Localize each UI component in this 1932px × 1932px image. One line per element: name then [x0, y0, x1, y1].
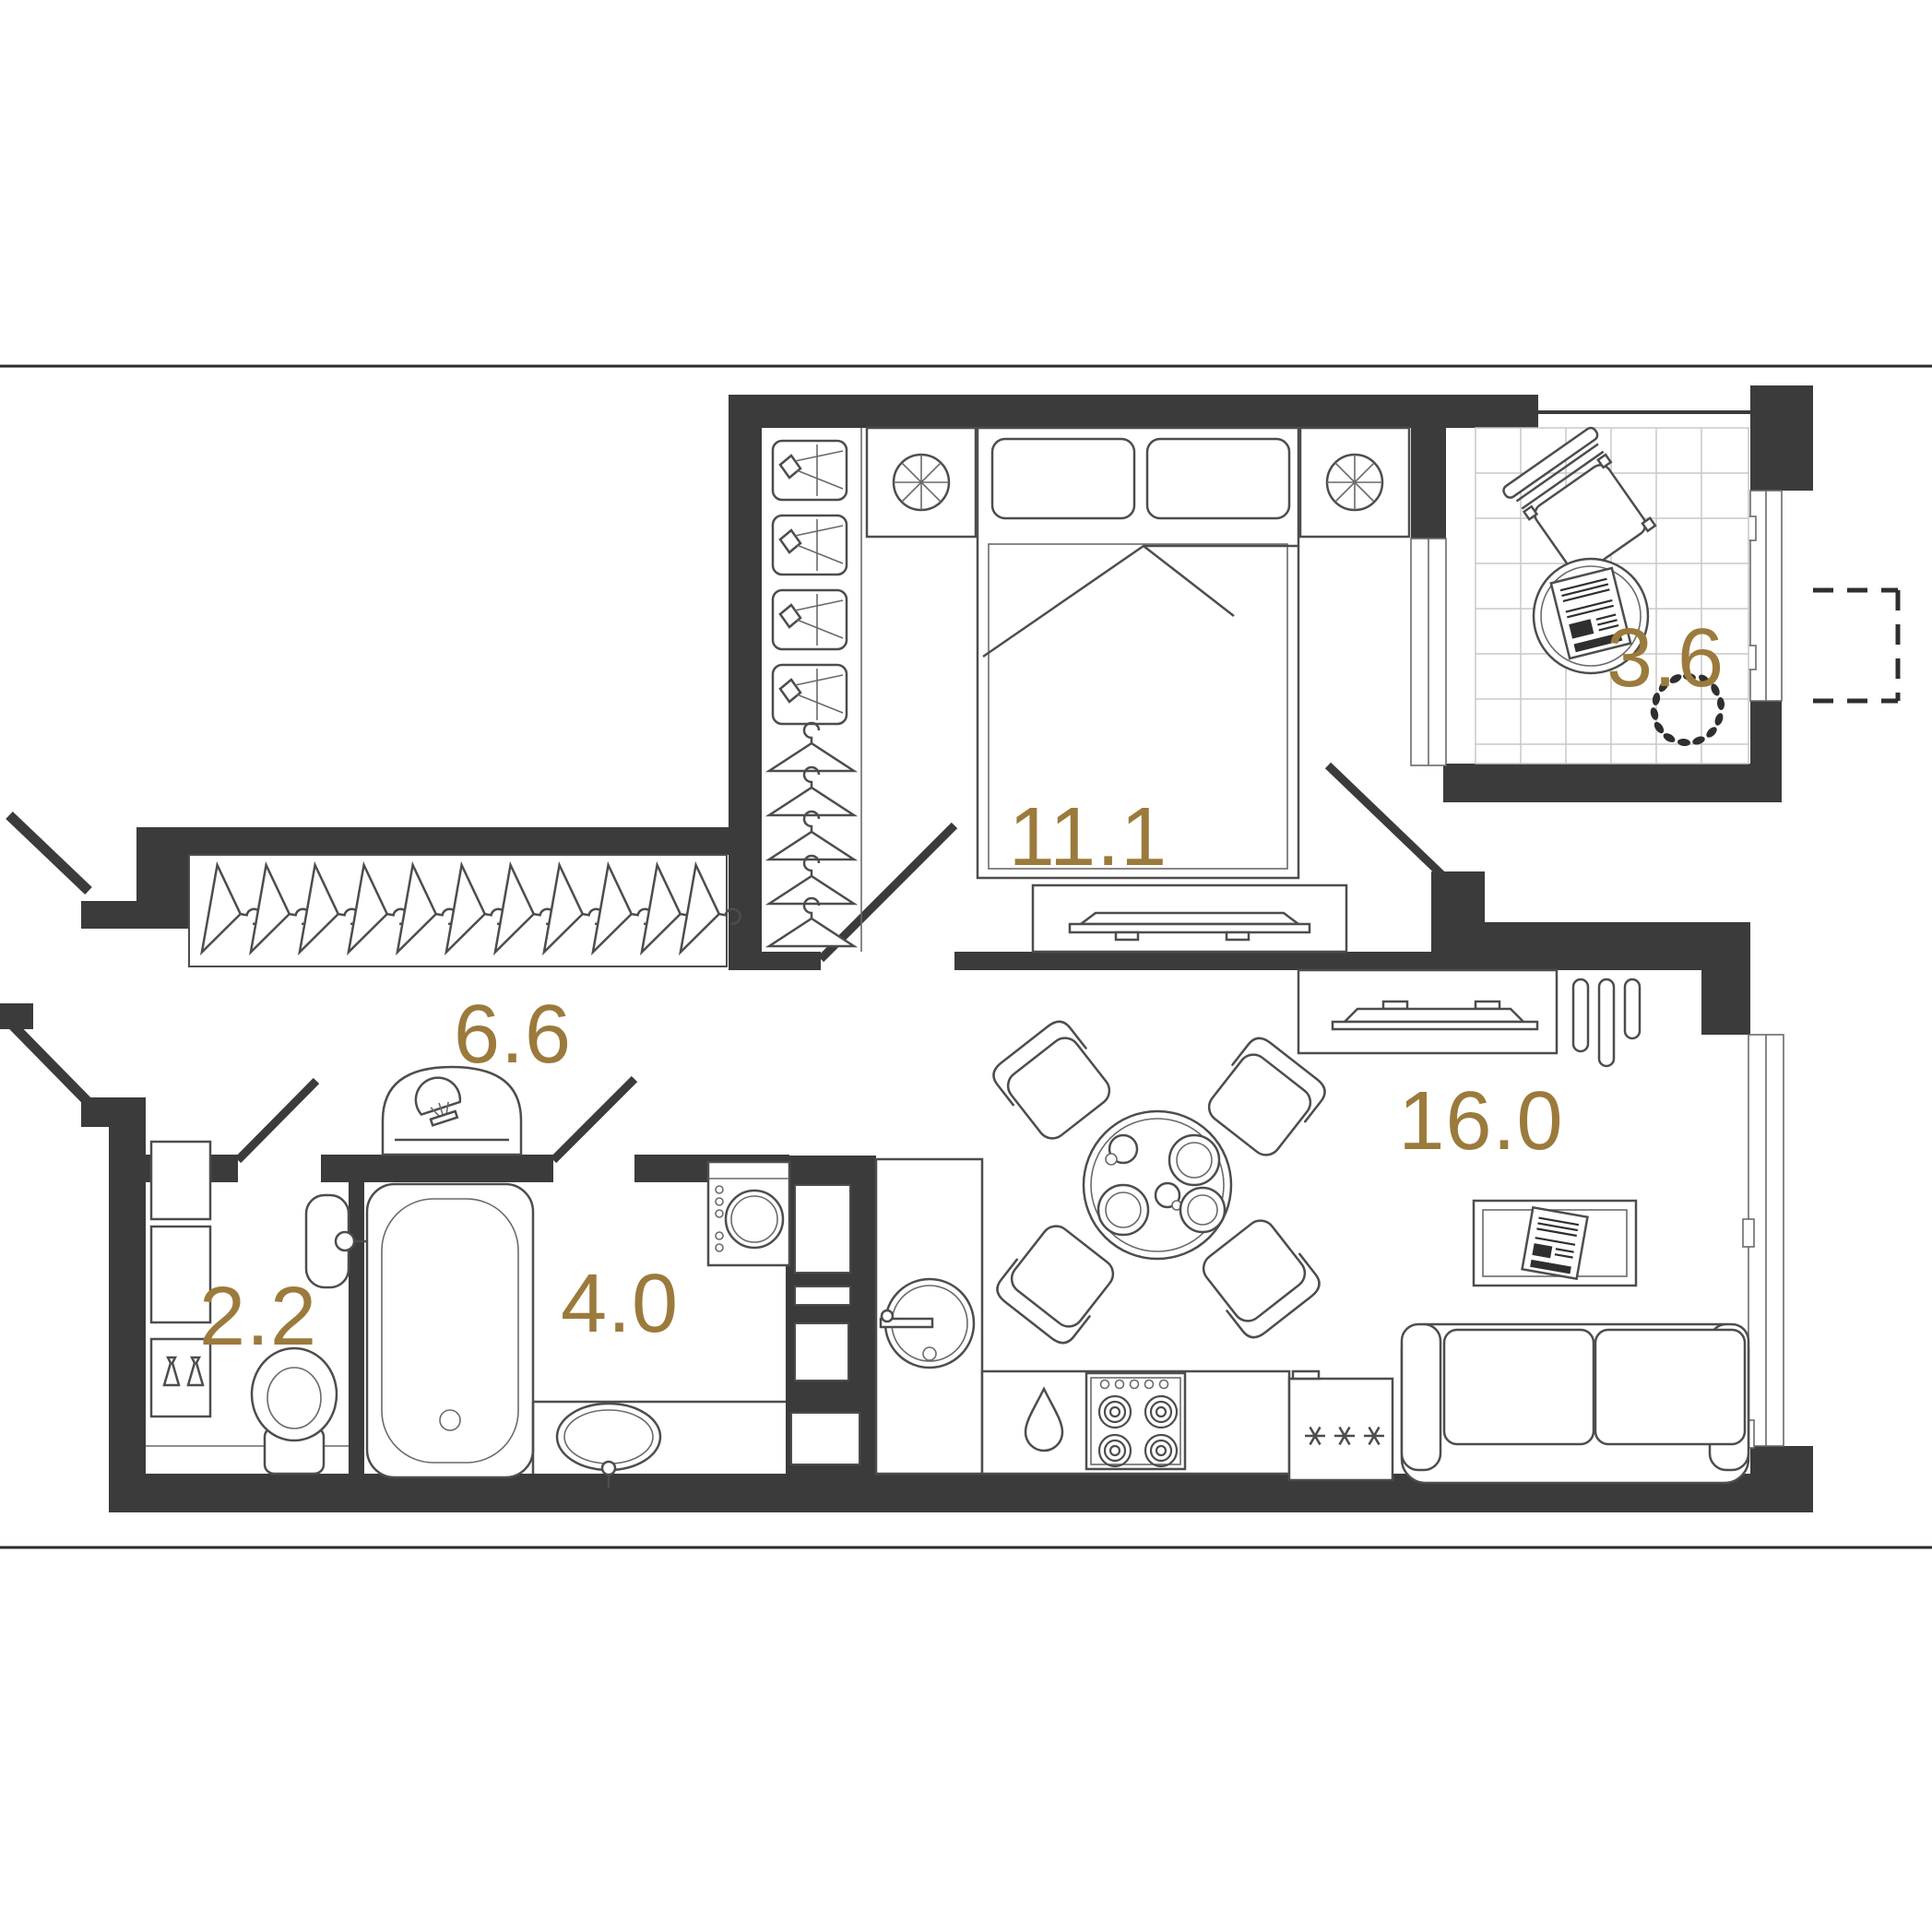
hall-closet — [189, 855, 748, 966]
room-area-label-hallway: 6.6 — [454, 989, 572, 1081]
washing-machine-icon — [708, 1162, 789, 1265]
balcony-outline-dashed — [1813, 590, 1898, 701]
room-area-label-balcony: 3.6 — [1606, 612, 1725, 705]
room-area-label-wc: 2.2 — [199, 1271, 317, 1363]
folded-clothes-icons — [773, 441, 847, 724]
kitchen-bottom-counter — [982, 1371, 1289, 1474]
bathtub — [367, 1184, 533, 1477]
bedroom-balcony-window — [1411, 539, 1446, 765]
entrance-door-leaf — [13, 1025, 109, 1123]
sofa — [1402, 1324, 1748, 1483]
floorplan-drawing: 11.1 3.6 6.6 2.2 4.0 16.0 — [0, 0, 1932, 1932]
coffee-table — [1474, 1201, 1636, 1286]
bedroom-tv-console — [1033, 885, 1346, 952]
pillow — [992, 439, 1134, 518]
exterior-door-leaf — [9, 815, 89, 891]
wardrobe-hanger-icons — [769, 723, 854, 946]
wc-door-leaf — [238, 1081, 316, 1160]
radiator-icon — [1573, 979, 1640, 1066]
toilet-icon — [252, 1348, 337, 1474]
kitchen-corner-counter — [876, 1159, 982, 1474]
kitchen-area — [876, 1016, 1393, 1480]
dining-set — [989, 1016, 1331, 1348]
balcony-right-window — [1745, 491, 1782, 701]
living-tv-console — [1298, 970, 1557, 1053]
room-area-label-kitchen-living: 16.0 — [1398, 1075, 1563, 1167]
magazine-icon — [1523, 1207, 1588, 1278]
stove-icon — [1086, 1373, 1185, 1469]
dining-chair — [989, 1016, 1120, 1147]
bedroom-wardrobe — [769, 428, 861, 952]
dining-chair — [992, 1217, 1123, 1348]
balcony-room — [1476, 426, 1748, 764]
bathroom-door-leaf — [553, 1079, 634, 1160]
nightstand-right — [1300, 428, 1409, 537]
dining-table — [1084, 1111, 1231, 1259]
room-area-label-bathroom: 4.0 — [561, 1258, 679, 1350]
floorplan-page: 11.1 3.6 6.6 2.2 4.0 16.0 — [0, 0, 1932, 1932]
nightstand-left — [867, 428, 976, 537]
pillow — [1147, 439, 1289, 518]
fridge-icon — [1289, 1371, 1393, 1480]
room-area-label-bedroom: 11.1 — [1009, 791, 1168, 883]
balcony-door-leaf — [1328, 765, 1443, 876]
